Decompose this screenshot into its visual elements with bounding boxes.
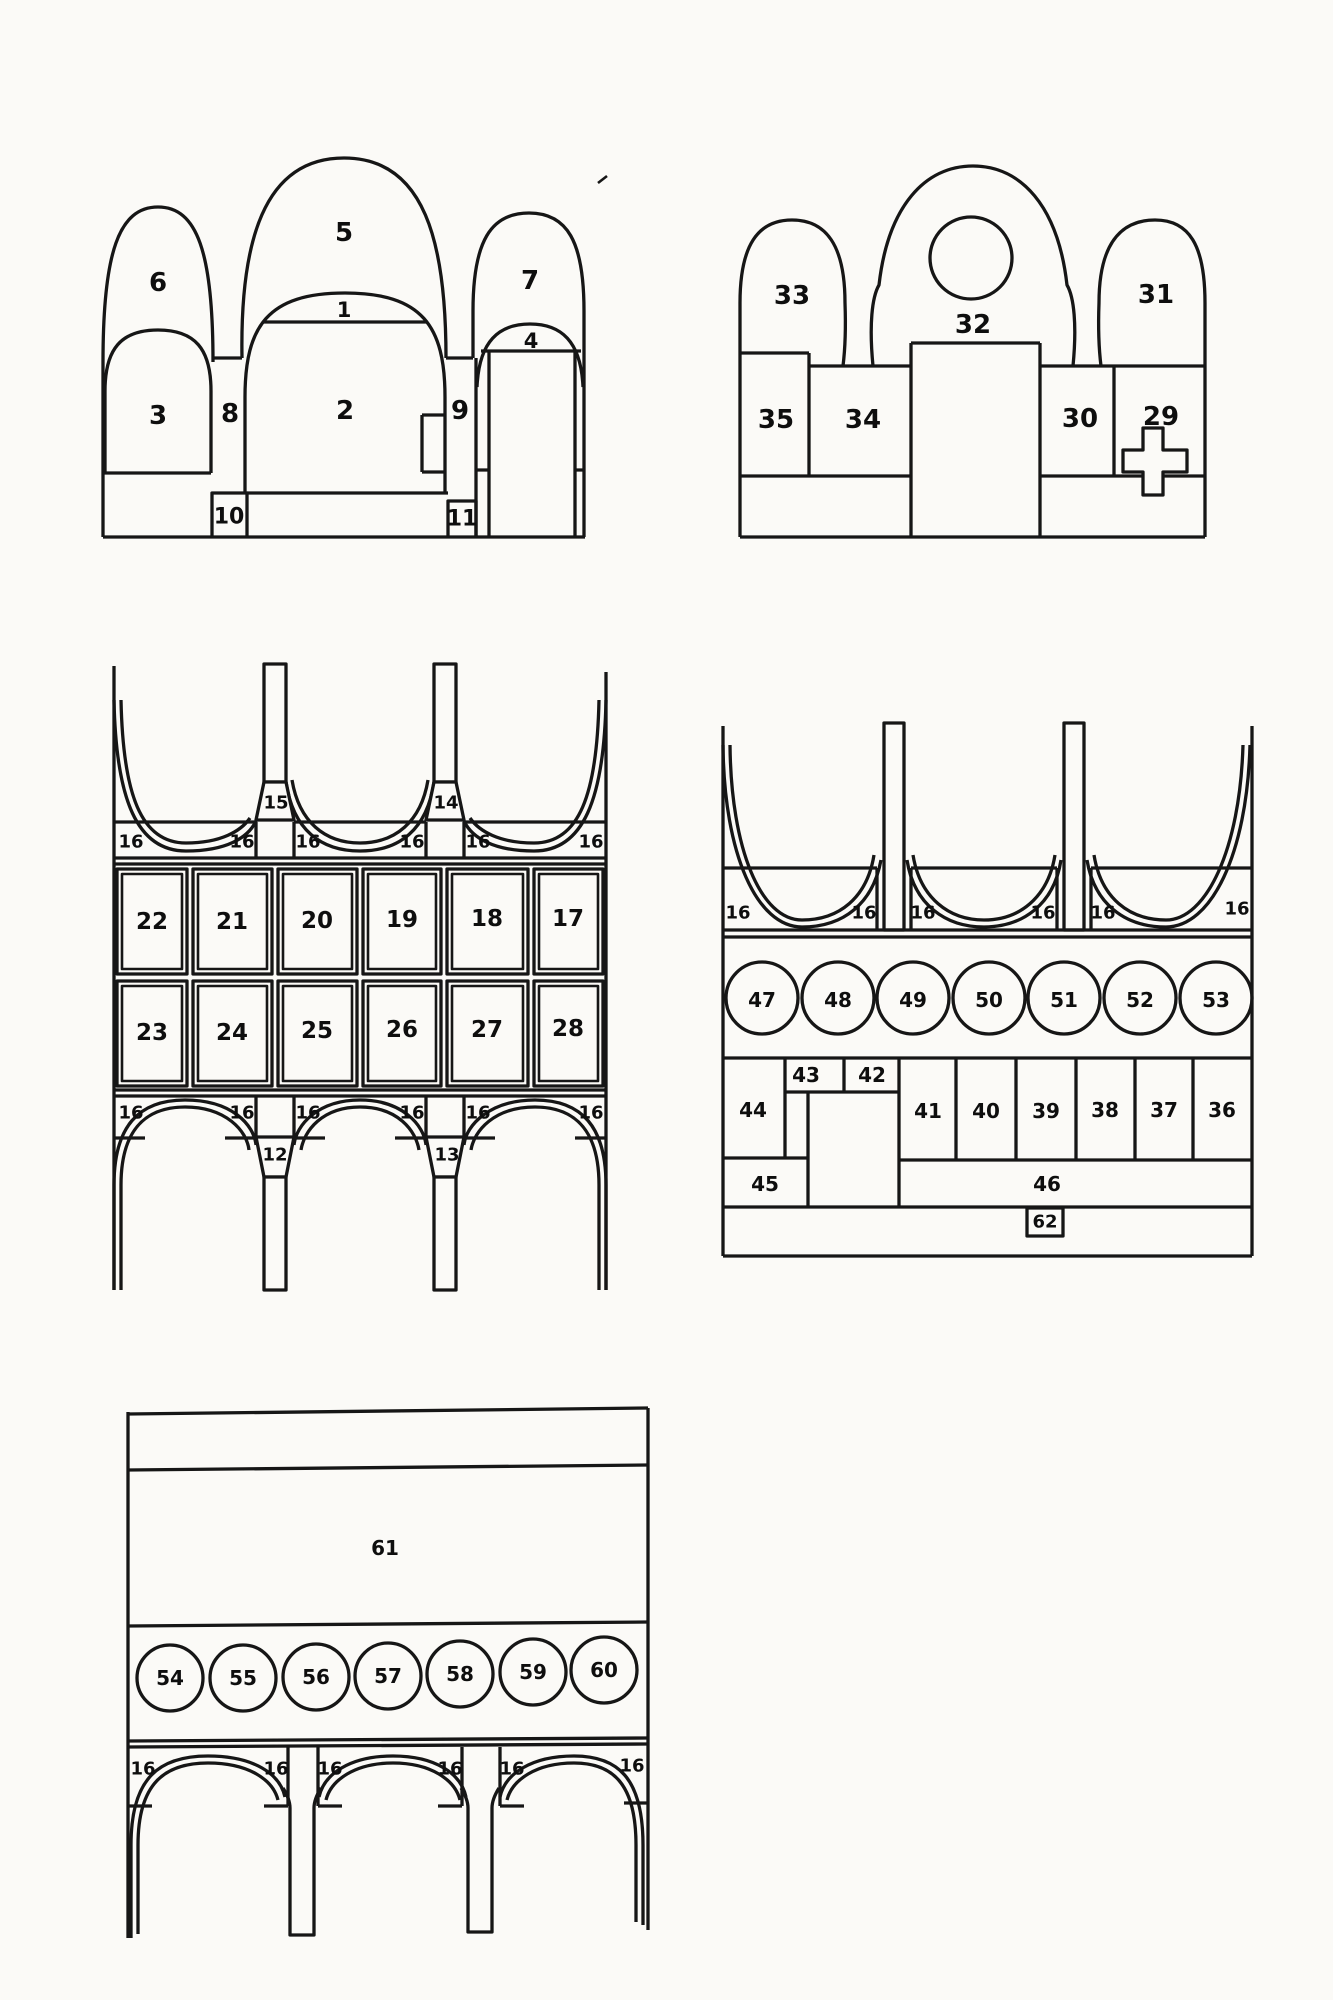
- lower-arch-1-inner: [121, 1107, 249, 1290]
- region-number-label: 16: [295, 1103, 320, 1124]
- region-number-label: 16: [229, 832, 254, 853]
- region-number-label: 49: [899, 988, 927, 1012]
- region-number-label: 42: [858, 1063, 886, 1087]
- arch-1-inner: [730, 745, 874, 920]
- region-number-label: 16: [725, 903, 750, 924]
- column-13: [434, 1177, 456, 1290]
- region-number-label: 9: [451, 396, 469, 426]
- column-a: [283, 1788, 321, 1935]
- grid-row-upper: [117, 869, 603, 974]
- region-number-label: 62: [1032, 1212, 1057, 1233]
- region-number-label: 52: [1126, 988, 1154, 1012]
- region-number-label: 46: [1033, 1172, 1061, 1196]
- region-number-label: 6: [149, 268, 167, 298]
- band61-bottom: [128, 1622, 648, 1626]
- panel-b-labels: 33323135343029: [758, 280, 1179, 435]
- arch-1-outer: [723, 745, 881, 927]
- region-number-label: 25: [301, 1018, 333, 1044]
- wall-scheme-c: 6154555657585960161616161616: [128, 1408, 648, 1938]
- region-number-label: 16: [465, 1103, 490, 1124]
- upper-double-line: [114, 858, 606, 864]
- region-number-label: 34: [845, 405, 881, 435]
- region-number-label: 23: [136, 1020, 168, 1046]
- central-door: [911, 343, 1040, 537]
- region-number-label: 10: [214, 505, 245, 530]
- arch-3-inner: [507, 1763, 636, 1922]
- elevation-diagrams-figure: 6571382941011 33323135343029: [0, 0, 1333, 2000]
- region-number-label: 37: [1150, 1098, 1178, 1122]
- region-number-label: 16: [130, 1759, 155, 1780]
- region-number-label: 16: [263, 1759, 288, 1780]
- region-number-label: 36: [1208, 1098, 1236, 1122]
- region-number-label: 16: [399, 1103, 424, 1124]
- region-number-label: 53: [1202, 988, 1230, 1012]
- medallion-double-line: [128, 1738, 648, 1747]
- region-number-label: 43: [792, 1063, 820, 1087]
- band-double-line: [723, 930, 1252, 937]
- region-number-label: 19: [386, 907, 418, 933]
- region-number-label: 16: [229, 1103, 254, 1124]
- facade-elevation-a: 6571382941011: [103, 158, 607, 537]
- region-number-label: 16: [1224, 899, 1249, 920]
- region-number-label: 38: [1091, 1098, 1119, 1122]
- region-number-label: 32: [955, 310, 991, 340]
- region-number-label: 57: [374, 1664, 402, 1688]
- cornice-top: [128, 1408, 648, 1414]
- region-number-label: 16: [578, 832, 603, 853]
- region-number-label: 16: [317, 1759, 342, 1780]
- cross-icon: [1123, 428, 1187, 495]
- column-12: [264, 1177, 286, 1290]
- region-number-label: 16: [1090, 903, 1115, 924]
- region-number-label: 12: [262, 1145, 287, 1166]
- region-number-label: 16: [295, 832, 320, 853]
- door4-sides: [489, 351, 575, 537]
- region-number-label: 16: [851, 903, 876, 924]
- region-number-label: 35: [758, 405, 794, 435]
- region-number-label: 54: [156, 1666, 184, 1690]
- scanned-diagram-page: 6571382941011 33323135343029: [0, 0, 1333, 2000]
- region-number-label: 16: [437, 1759, 462, 1780]
- region-number-label: 40: [972, 1099, 1000, 1123]
- region-number-label: 18: [471, 906, 503, 932]
- region-number-label: 16: [465, 832, 490, 853]
- region-number-label: 16: [118, 1103, 143, 1124]
- arch-3-inner: [1094, 745, 1243, 920]
- region-number-label: 20: [301, 908, 333, 934]
- region-number-label: 16: [399, 832, 424, 853]
- region-number-label: 41: [914, 1099, 942, 1123]
- dome31-left-leg: [1099, 303, 1101, 366]
- region-number-label: 55: [229, 1666, 257, 1690]
- scan-mark: [598, 176, 607, 183]
- region-number-label: 4: [524, 329, 539, 353]
- wall-scheme-a: 1514161616161616222120191817232425262728…: [114, 664, 606, 1290]
- region-number-label: 5: [335, 218, 353, 248]
- region-number-label: 1: [337, 298, 352, 322]
- region-number-label: 13: [434, 1145, 459, 1166]
- region-number-label: 58: [446, 1662, 474, 1686]
- region-number-label: 26: [386, 1017, 418, 1043]
- region-number-label: 15: [263, 793, 288, 814]
- region-number-label: 7: [521, 266, 539, 296]
- band-bottom-stubs: [128, 1803, 648, 1806]
- region-number-label: 33: [774, 281, 810, 311]
- facade-elevation-b: 33323135343029: [740, 166, 1205, 537]
- region-number-label: 60: [590, 1658, 618, 1682]
- region-number-label: 47: [748, 988, 776, 1012]
- wall-scheme-b: 1616161616164748495051525343424441403938…: [723, 723, 1252, 1256]
- region-number-label: 14: [433, 793, 458, 814]
- window-notch: [422, 415, 445, 472]
- region-number-label: 59: [519, 1660, 547, 1684]
- region-number-label: 16: [910, 903, 935, 924]
- region-number-label: 30: [1062, 404, 1098, 434]
- column-14: [434, 664, 456, 782]
- column-b: [1064, 723, 1084, 930]
- region-number-label: 28: [552, 1016, 584, 1042]
- region-number-label: 39: [1032, 1099, 1060, 1123]
- lower-arch-3-inner: [471, 1107, 599, 1290]
- region-number-label: 48: [824, 988, 852, 1012]
- region-number-label: 3: [149, 401, 167, 431]
- upper-arch-3-outer: [464, 700, 606, 851]
- region-number-label: 31: [1138, 280, 1174, 310]
- column-b: [461, 1788, 499, 1932]
- region-number-label: 51: [1050, 988, 1078, 1012]
- region-number-label: 61: [371, 1536, 399, 1560]
- region-number-label: 21: [216, 909, 248, 935]
- region-number-label: 8: [221, 399, 239, 429]
- region-number-label: 11: [447, 507, 478, 532]
- panel-c-labels: 1514161616161616222120191817232425262728…: [118, 793, 603, 1166]
- panel-d-labels: 1616161616164748495051525343424441403938…: [725, 899, 1249, 1233]
- left-edge-dome6: [103, 207, 213, 537]
- grid-row-lower: [117, 981, 603, 1086]
- region-number-label: 27: [471, 1017, 503, 1043]
- region-number-label: 56: [302, 1665, 330, 1689]
- region-number-label: 16: [619, 1756, 644, 1777]
- region-number-label: 2: [336, 396, 354, 426]
- arch-1-inner: [138, 1763, 278, 1934]
- region-number-label: 16: [578, 1103, 603, 1124]
- dome32-oculus: [930, 217, 1012, 299]
- column-15: [264, 664, 286, 782]
- region-number-label: 50: [975, 988, 1003, 1012]
- region-number-label: 16: [499, 1759, 524, 1780]
- lower-double-line: [114, 1090, 606, 1096]
- region-number-label: 44: [739, 1098, 767, 1122]
- lower-band-verticals: [256, 1096, 464, 1137]
- upper-arch-1-outer: [114, 700, 256, 851]
- cornice-bottom: [128, 1465, 648, 1470]
- region-number-label: 22: [136, 909, 168, 935]
- region-number-label: 29: [1143, 402, 1179, 432]
- region-number-label: 24: [216, 1020, 248, 1046]
- dome33-right-leg: [843, 303, 845, 366]
- region-number-label: 17: [552, 906, 584, 932]
- dome5-arch: [242, 158, 446, 358]
- column-a: [884, 723, 904, 930]
- region-number-label: 16: [118, 832, 143, 853]
- region-number-label: 45: [751, 1172, 779, 1196]
- region-number-label: 16: [1030, 903, 1055, 924]
- left-edge-dome33: [740, 220, 845, 537]
